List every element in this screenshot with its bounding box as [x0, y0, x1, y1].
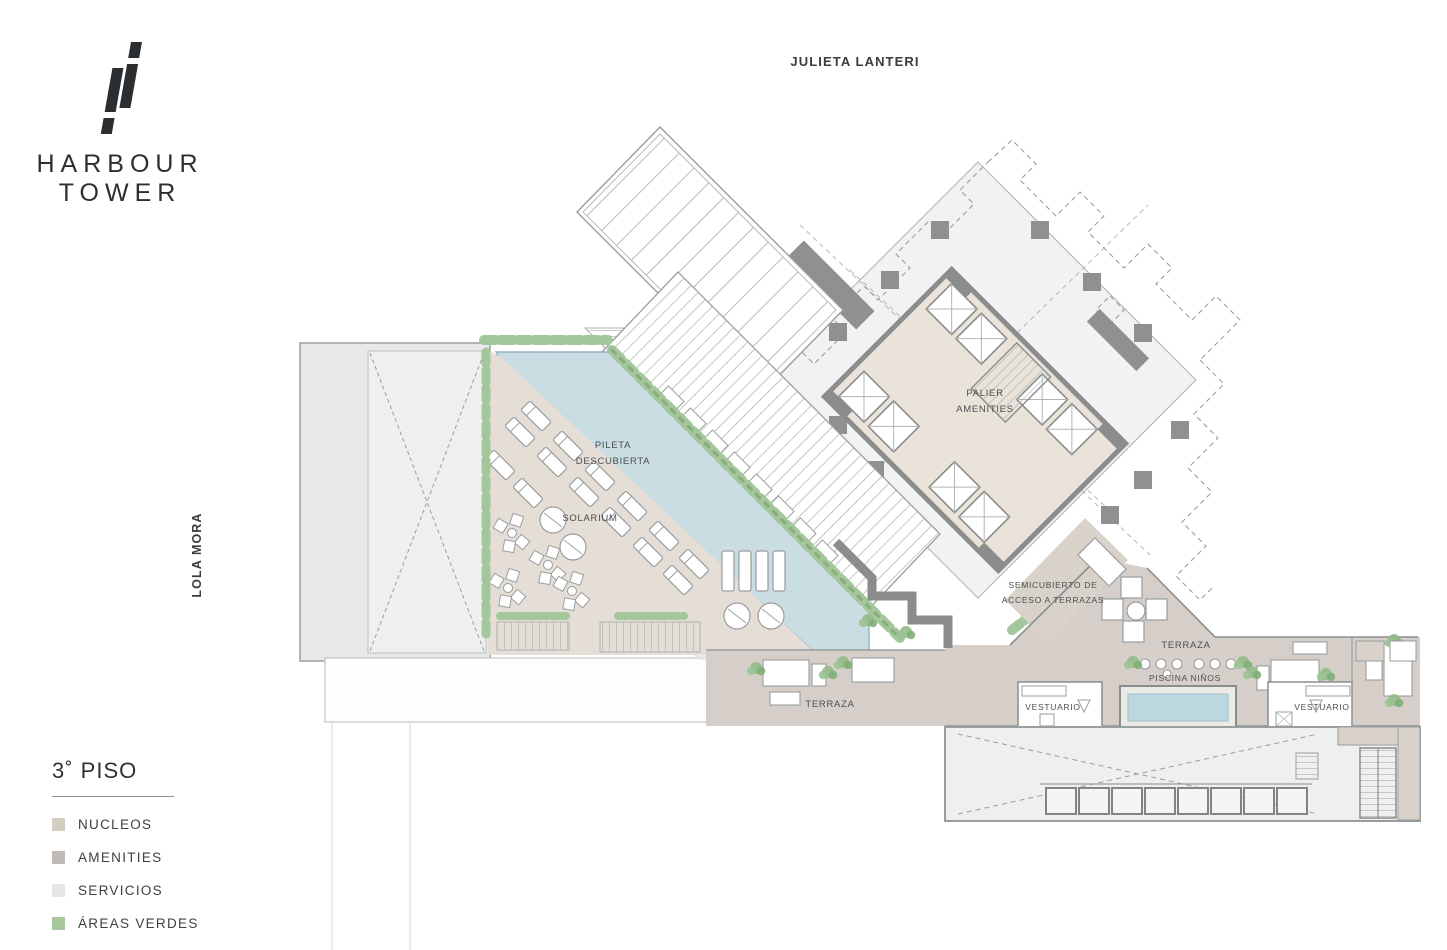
label-terraza-bottom: TERRAZA: [805, 699, 854, 710]
label-vestuario-left: VESTUARIO: [1025, 702, 1080, 712]
service-roof-bottom-block: [945, 727, 1420, 821]
terrace-bottom: [706, 650, 948, 726]
label-semicubierto-line1: SEMICUBIERTO DE: [1008, 580, 1097, 590]
label-pileta-line2: DESCUBIERTA: [576, 456, 650, 467]
label-palier-line1: PALIER: [966, 388, 1003, 399]
label-terraza-right: TERRAZA: [1161, 640, 1210, 651]
floor-plan: PILETA DESCUBIERTA SOLARIUM PALIER AMENI…: [0, 0, 1447, 950]
label-piscina-ninos: PISCINA NIÑOS: [1149, 673, 1221, 683]
label-solarium: SOLARIUM: [562, 513, 617, 524]
label-semicubierto-line2: ACCESO A TERRAZAS: [1002, 595, 1104, 605]
label-vestuario-right: VESTUARIO: [1294, 702, 1349, 712]
label-palier-line2: AMENITIES: [956, 404, 1014, 415]
label-pileta-line1: PILETA: [595, 440, 631, 451]
